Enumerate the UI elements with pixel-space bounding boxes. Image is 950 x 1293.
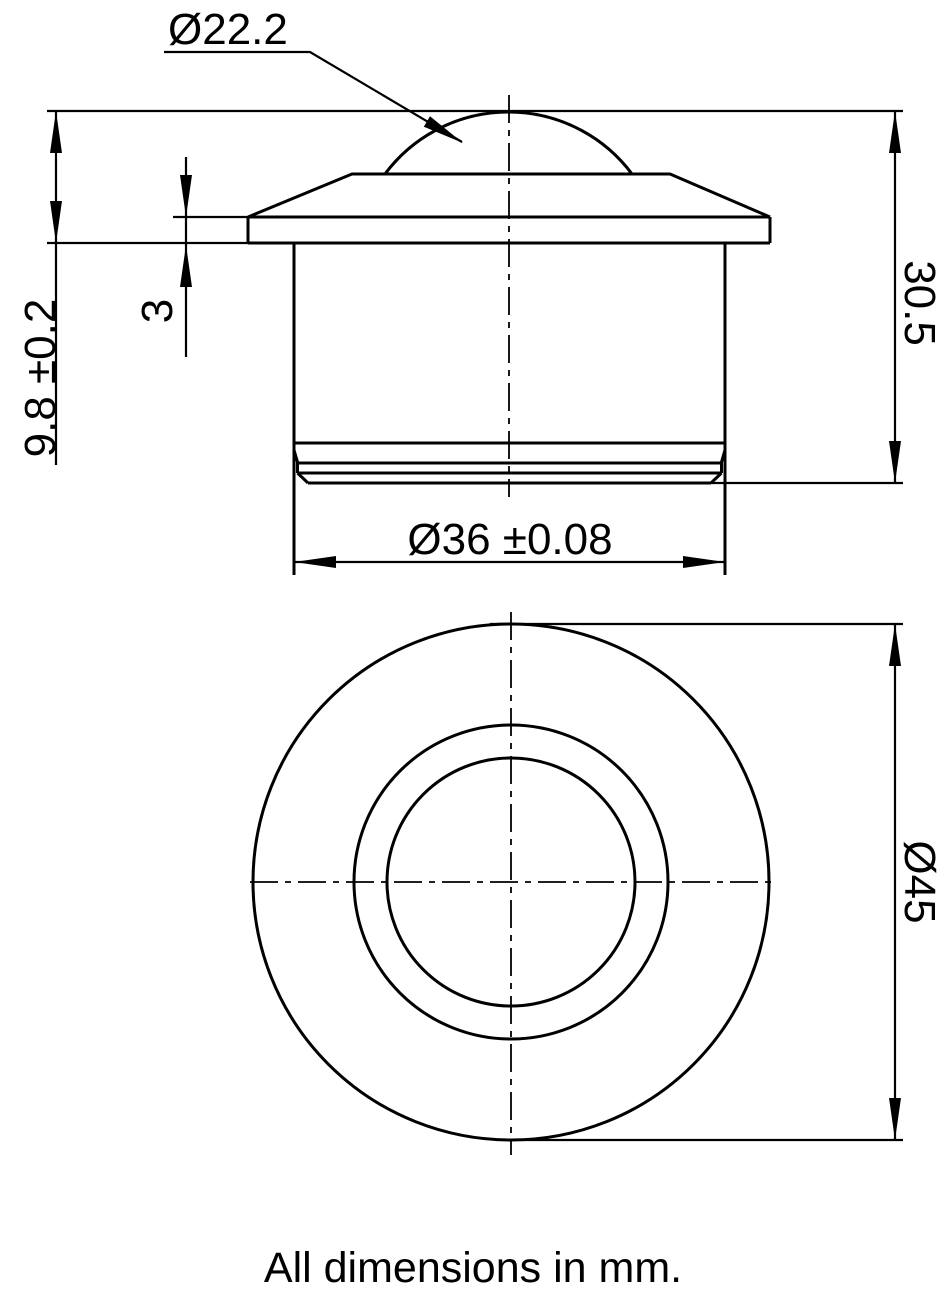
dim-overall-height: 30.5: [711, 111, 944, 483]
dim-ball-diameter: Ø22.2: [164, 5, 463, 143]
flange-diameter-label: Ø45: [895, 840, 944, 923]
technical-drawing: Ø22.2 9.8 ±0.2 3 30.5 Ø36 ±0.08: [0, 0, 950, 1293]
arrowhead-left-icon: [294, 556, 336, 568]
drawing-caption: All dimensions in mm.: [264, 1244, 682, 1292]
dim-body-diameter: Ø36 ±0.08: [294, 515, 725, 568]
arrowhead-up-icon: [50, 111, 62, 153]
side-view: [248, 95, 770, 575]
arrowhead-down-icon: [50, 201, 62, 243]
drawing-sheet: Ø22.2 9.8 ±0.2 3 30.5 Ø36 ±0.08: [0, 0, 950, 1293]
arrowhead-down-icon: [180, 175, 192, 217]
protrusion-height-label: 9.8 ±0.2: [16, 299, 65, 458]
body-diameter-label: Ø36 ±0.08: [407, 515, 612, 564]
ball-diameter-leader-line: [164, 52, 462, 142]
arrowhead-up-icon: [180, 245, 192, 287]
dim-plate-thickness: 3: [133, 157, 248, 357]
arrowhead-down-icon: [889, 441, 901, 483]
ball-diameter-label: Ø22.2: [168, 5, 288, 54]
arrowhead-right-icon: [683, 556, 725, 568]
plan-view: [250, 612, 775, 1155]
arrowhead-up-icon: [889, 624, 901, 666]
dim-protrusion-height: 9.8 ±0.2: [16, 111, 903, 465]
arrowhead-up-icon: [889, 111, 901, 153]
overall-height-label: 30.5: [895, 260, 944, 346]
arrowhead-down-icon: [889, 1098, 901, 1140]
plate-thickness-label: 3: [133, 299, 182, 323]
